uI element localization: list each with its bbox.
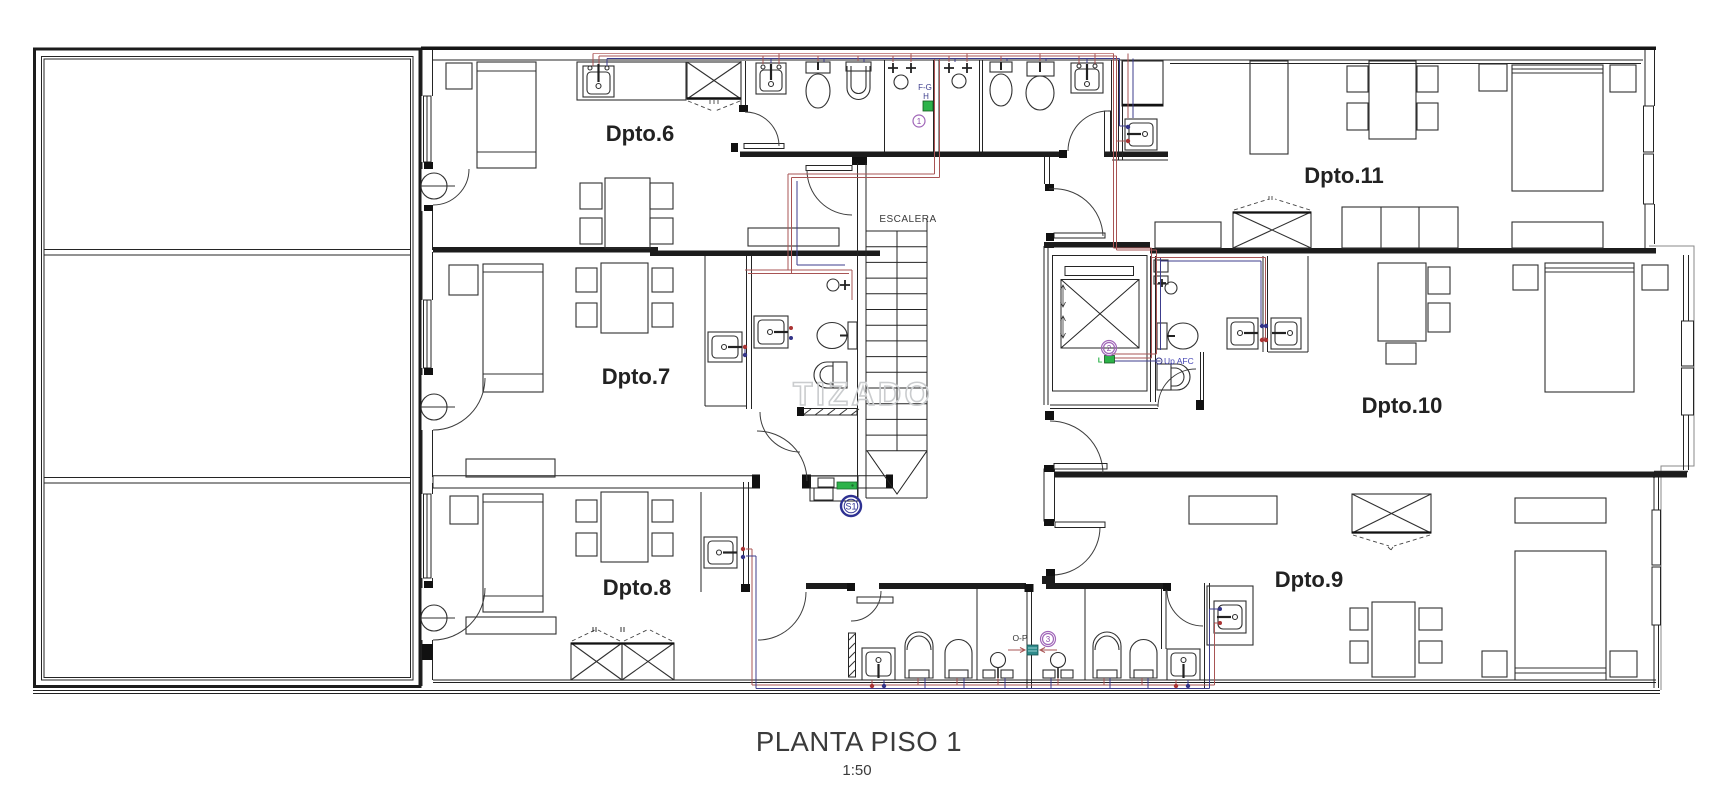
svg-text:L: L — [1098, 356, 1103, 365]
svg-text:F-G: F-G — [918, 83, 932, 92]
svg-text:Up AFC: Up AFC — [1164, 356, 1194, 366]
svg-text:S1: S1 — [845, 502, 856, 512]
svg-text:Dpto.10: Dpto.10 — [1362, 393, 1443, 418]
svg-text:1: 1 — [917, 117, 922, 126]
svg-text:1:50: 1:50 — [842, 762, 871, 779]
svg-text:Dpto.9: Dpto.9 — [1275, 567, 1343, 592]
svg-text:Dpto.7: Dpto.7 — [602, 364, 670, 389]
svg-text:Dpto.11: Dpto.11 — [1304, 163, 1383, 188]
svg-text:ESCALERA: ESCALERA — [879, 214, 936, 225]
svg-text:O-P: O-P — [1012, 633, 1027, 643]
svg-text:H: H — [923, 92, 929, 101]
svg-text:3: 3 — [1046, 635, 1051, 644]
svg-text:Dpto.6: Dpto.6 — [606, 121, 674, 146]
svg-text:TIZADO: TIZADO — [793, 376, 933, 412]
svg-text:Dpto.8: Dpto.8 — [603, 575, 671, 600]
svg-text:PLANTA PISO 1: PLANTA PISO 1 — [756, 726, 962, 757]
svg-text:2: 2 — [1107, 344, 1112, 353]
